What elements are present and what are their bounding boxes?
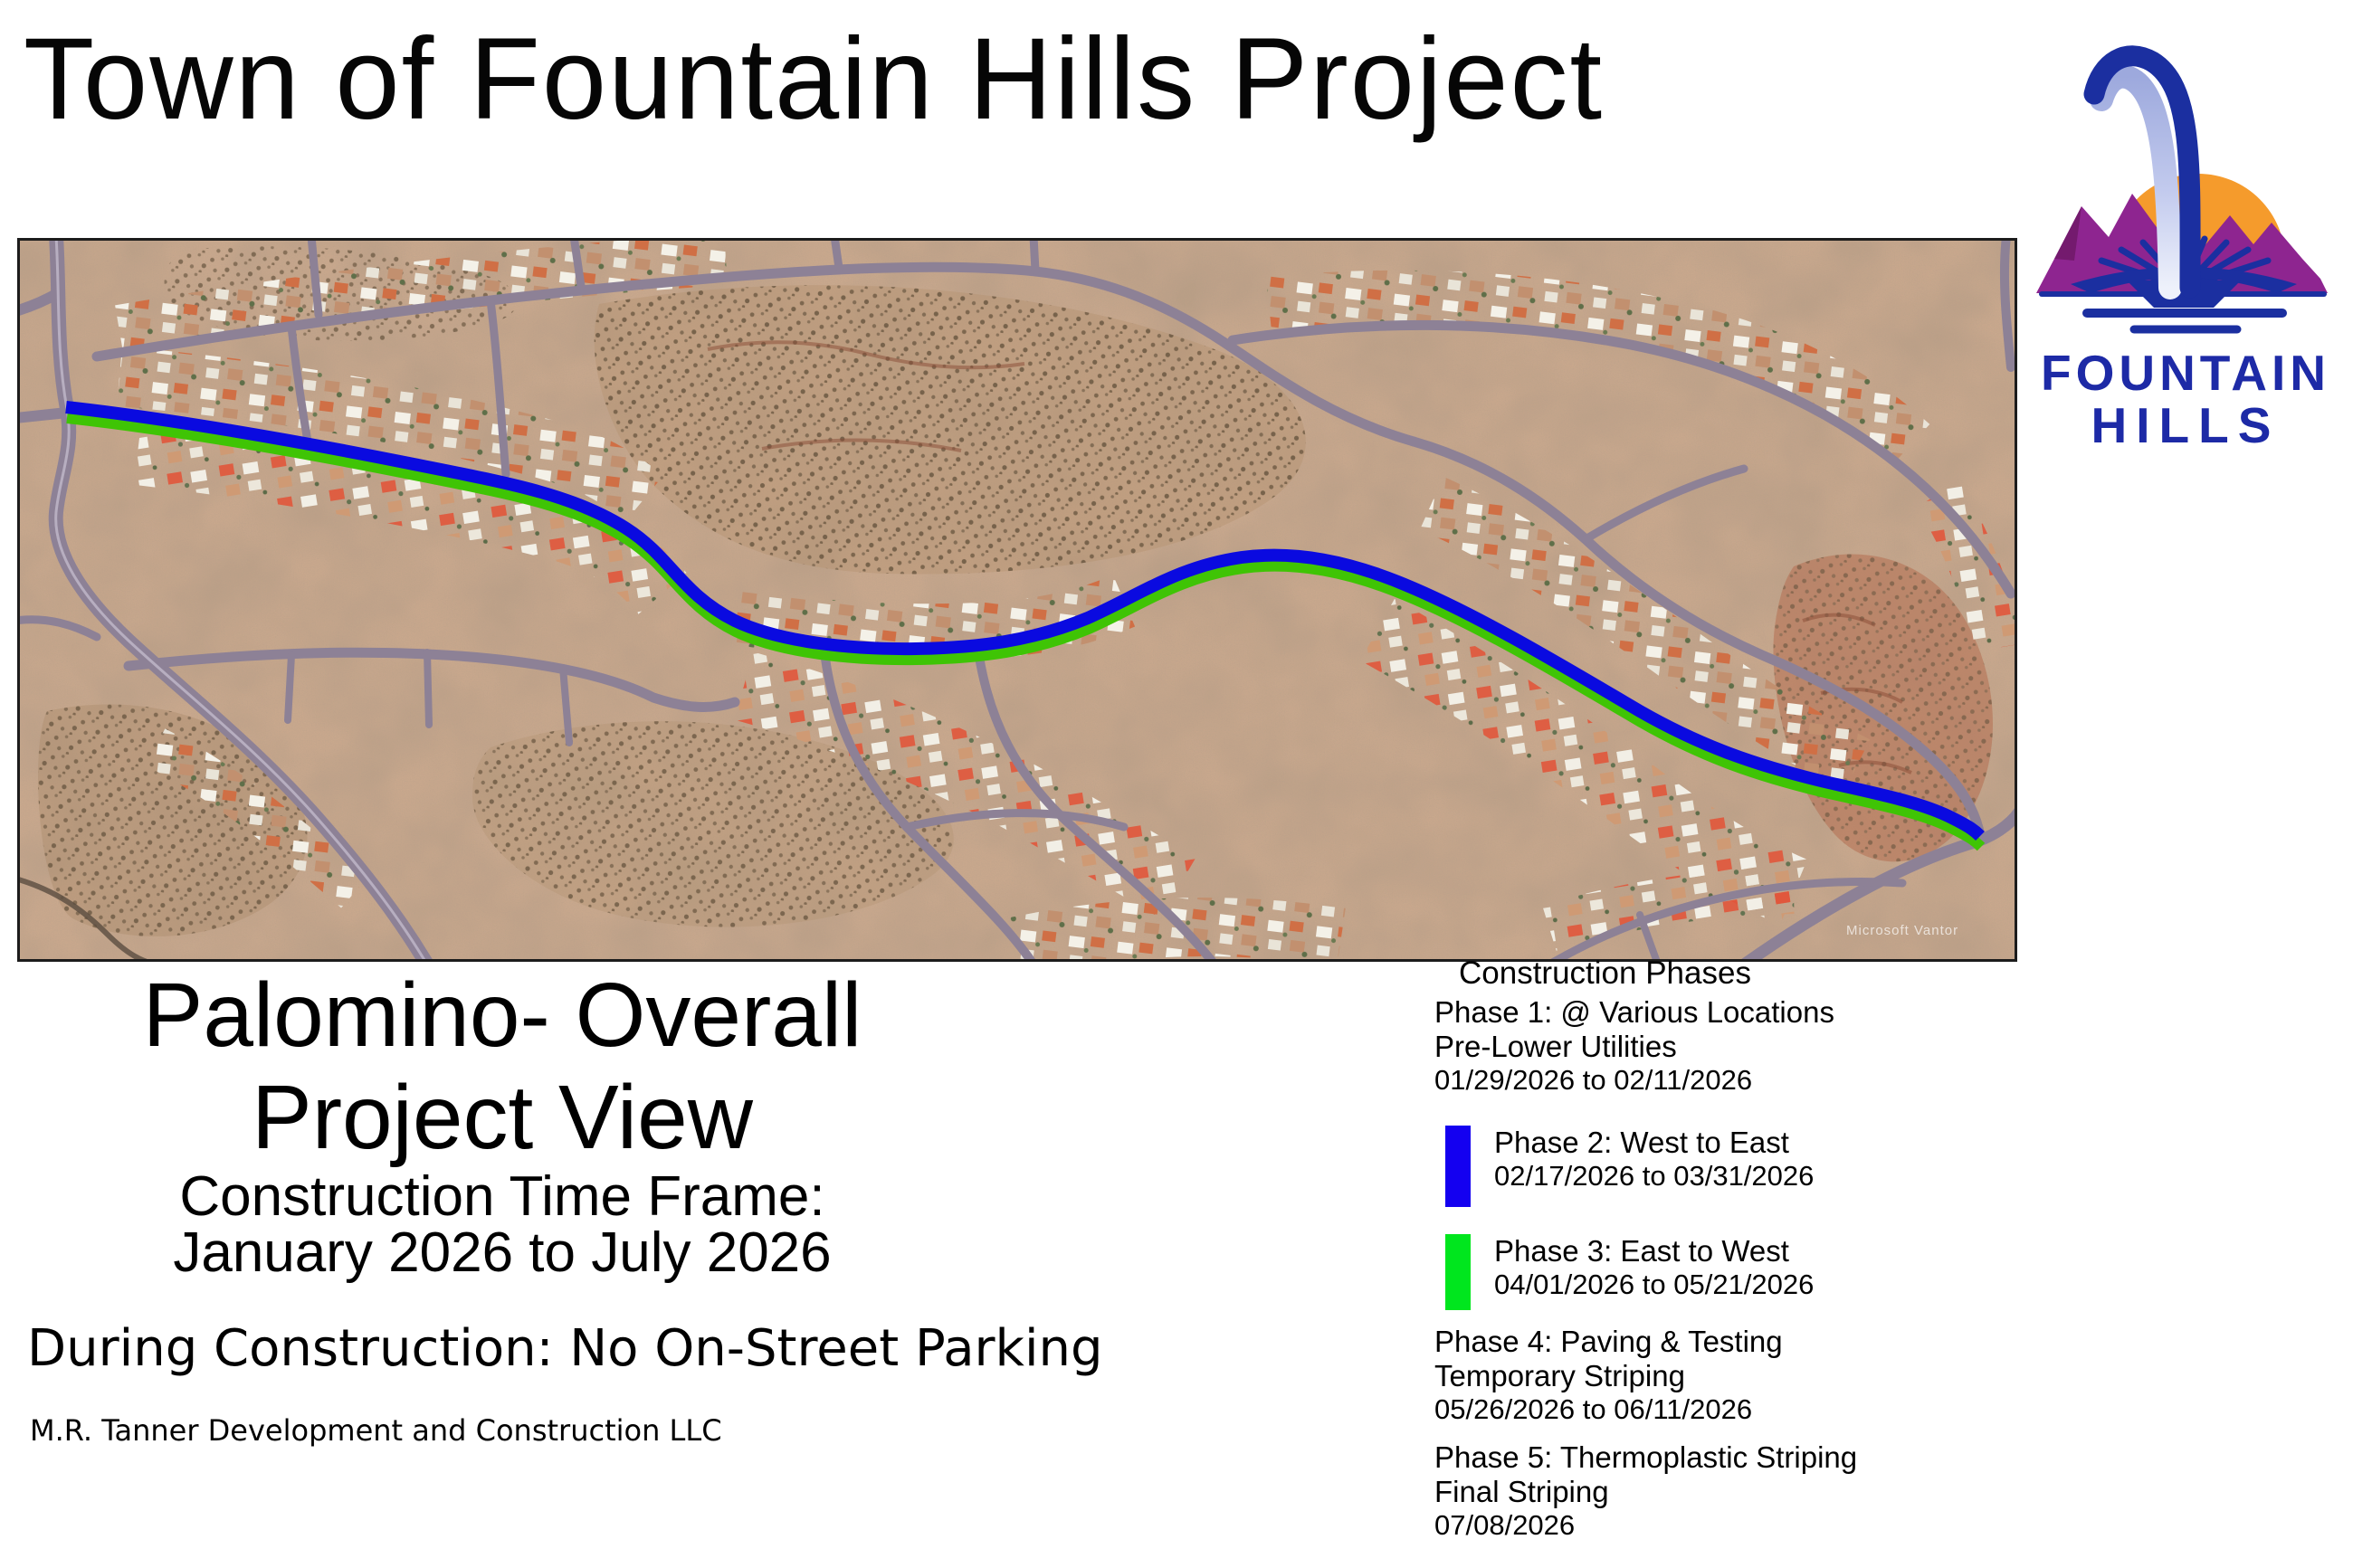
phase-dates: 05/26/2026 to 06/11/2026 xyxy=(1434,1393,1783,1426)
phase3-swatch xyxy=(1445,1234,1471,1310)
legend-phase-5: Phase 5: Thermoplastic Striping Final St… xyxy=(1434,1440,1857,1542)
project-caption: Palomino- Overall Project View Construct… xyxy=(36,965,968,1281)
contractor-name: M.R. Tanner Development and Construction… xyxy=(30,1413,722,1448)
phase-detail: Temporary Striping xyxy=(1434,1359,1783,1393)
timeframe-label: Construction Time Frame: xyxy=(36,1169,968,1225)
parking-notice: During Construction: No On-Street Parkin… xyxy=(27,1319,1103,1378)
aerial-map-canvas xyxy=(20,241,2015,959)
legend-phase-4: Phase 4: Paving & Testing Temporary Stri… xyxy=(1434,1325,1783,1426)
timeframe-dates: January 2026 to July 2026 xyxy=(36,1225,968,1281)
project-name-line1: Palomino- Overall xyxy=(36,965,968,1067)
phase-dates: 07/08/2026 xyxy=(1434,1509,1857,1542)
logo-text-fountain: FOUNTAIN xyxy=(2036,347,2335,399)
imagery-watermark: Microsoft Vantor xyxy=(1846,923,1958,938)
phase-name: Phase 1: @ Various Locations xyxy=(1434,995,1834,1030)
phase-name: Phase 5: Thermoplastic Striping xyxy=(1434,1440,1857,1475)
fountain-logo-icon xyxy=(2036,24,2335,342)
phase-name: Phase 3: East to West xyxy=(1494,1234,1814,1269)
legend-phase-1: Phase 1: @ Various Locations Pre-Lower U… xyxy=(1434,995,1834,1097)
project-flyer: Town of Fountain Hills Project xyxy=(0,0,2353,1568)
phase-detail: Pre-Lower Utilities xyxy=(1434,1030,1834,1064)
phase2-swatch xyxy=(1445,1126,1471,1207)
logo-text-hills: HILLS xyxy=(2036,399,2335,451)
page-title: Town of Fountain Hills Project xyxy=(24,13,1604,146)
fountain-hills-logo: FOUNTAIN HILLS xyxy=(2036,24,2335,451)
aerial-map xyxy=(17,238,2017,962)
legend-phase-2: Phase 2: West to East 02/17/2026 to 03/3… xyxy=(1445,1126,1814,1207)
phase-detail: Final Striping xyxy=(1434,1475,1857,1509)
phase-name: Phase 2: West to East xyxy=(1494,1126,1814,1160)
phase-dates: 02/17/2026 to 03/31/2026 xyxy=(1494,1160,1814,1193)
legend-title: Construction Phases xyxy=(1459,955,1751,992)
project-name-line2: Project View xyxy=(36,1067,968,1169)
legend-phase-3: Phase 3: East to West 04/01/2026 to 05/2… xyxy=(1445,1234,1814,1310)
phase-dates: 01/29/2026 to 02/11/2026 xyxy=(1434,1064,1834,1097)
phase-dates: 04/01/2026 to 05/21/2026 xyxy=(1494,1269,1814,1301)
phase-name: Phase 4: Paving & Testing xyxy=(1434,1325,1783,1359)
